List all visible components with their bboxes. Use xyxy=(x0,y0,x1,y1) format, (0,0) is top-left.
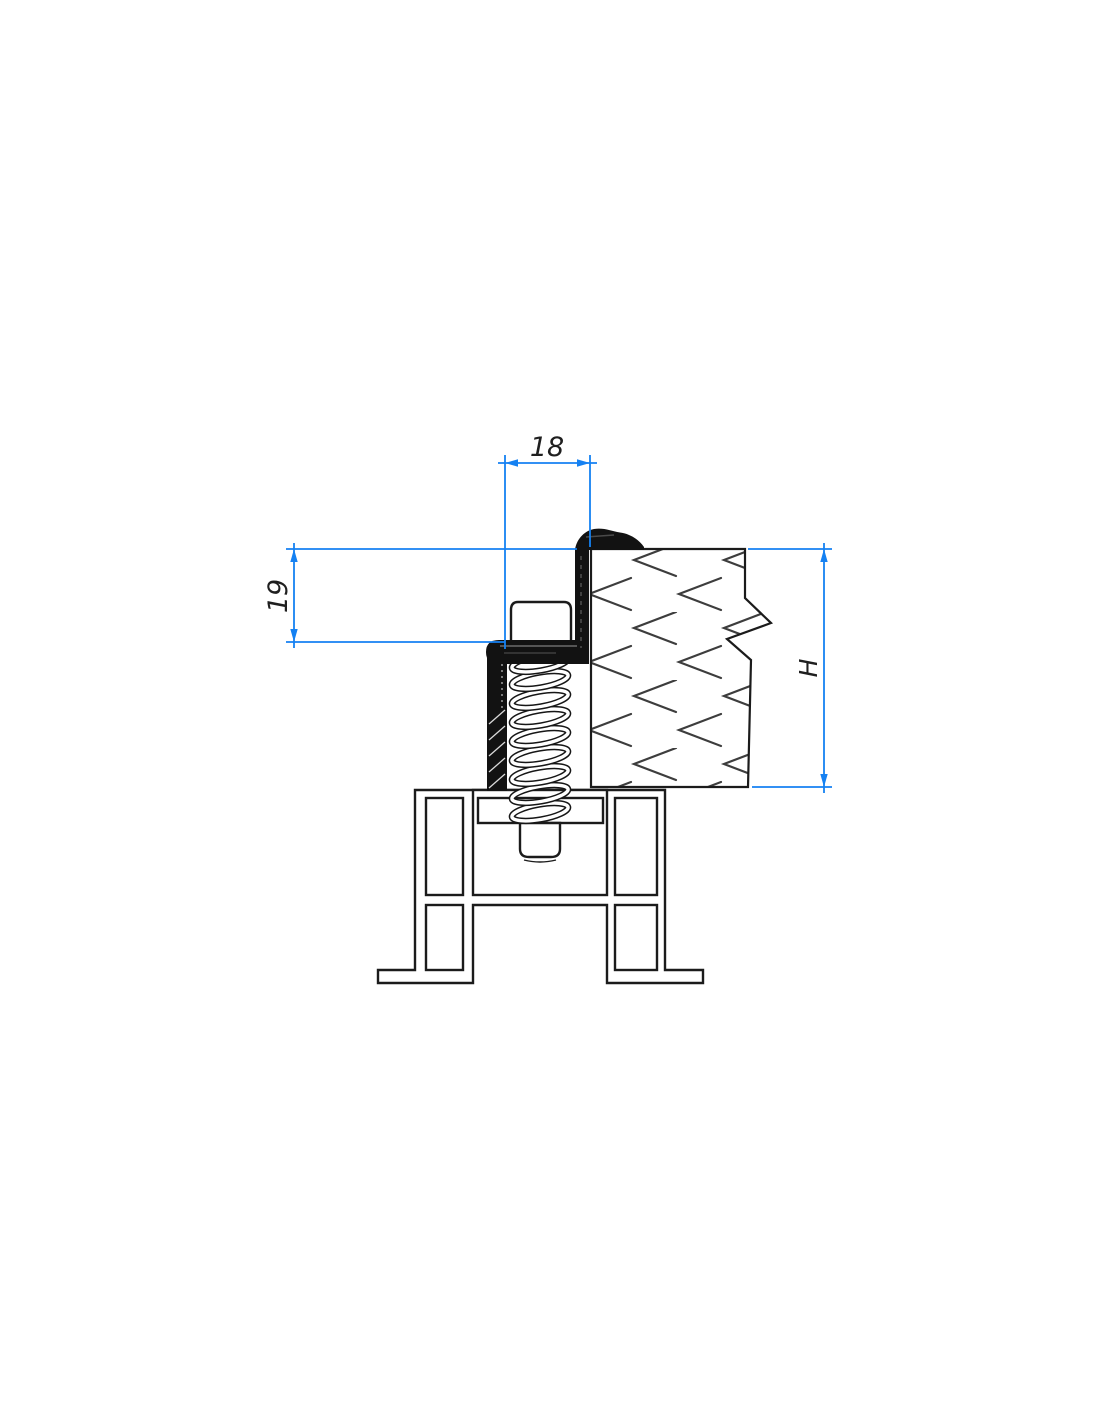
panel-section xyxy=(591,549,771,787)
dim18-label: 18 xyxy=(530,432,564,463)
panel-body xyxy=(591,549,771,787)
profile-chamber-left-upper xyxy=(426,798,463,895)
profile-chamber-left-lower xyxy=(426,905,463,970)
gasket-top-lip xyxy=(575,529,644,550)
profile-chamber-right-upper xyxy=(615,798,657,895)
screw-shank xyxy=(520,823,560,857)
dim19-label: 19 xyxy=(263,579,294,613)
profile-chamber-right-lower xyxy=(615,905,657,970)
profile-cross-section-drawing: 18 19 H xyxy=(0,0,1100,1422)
dimension-H: H xyxy=(748,543,832,793)
technical-drawing-page: 18 19 H xyxy=(0,0,1100,1422)
dimH-label: H xyxy=(794,658,823,677)
